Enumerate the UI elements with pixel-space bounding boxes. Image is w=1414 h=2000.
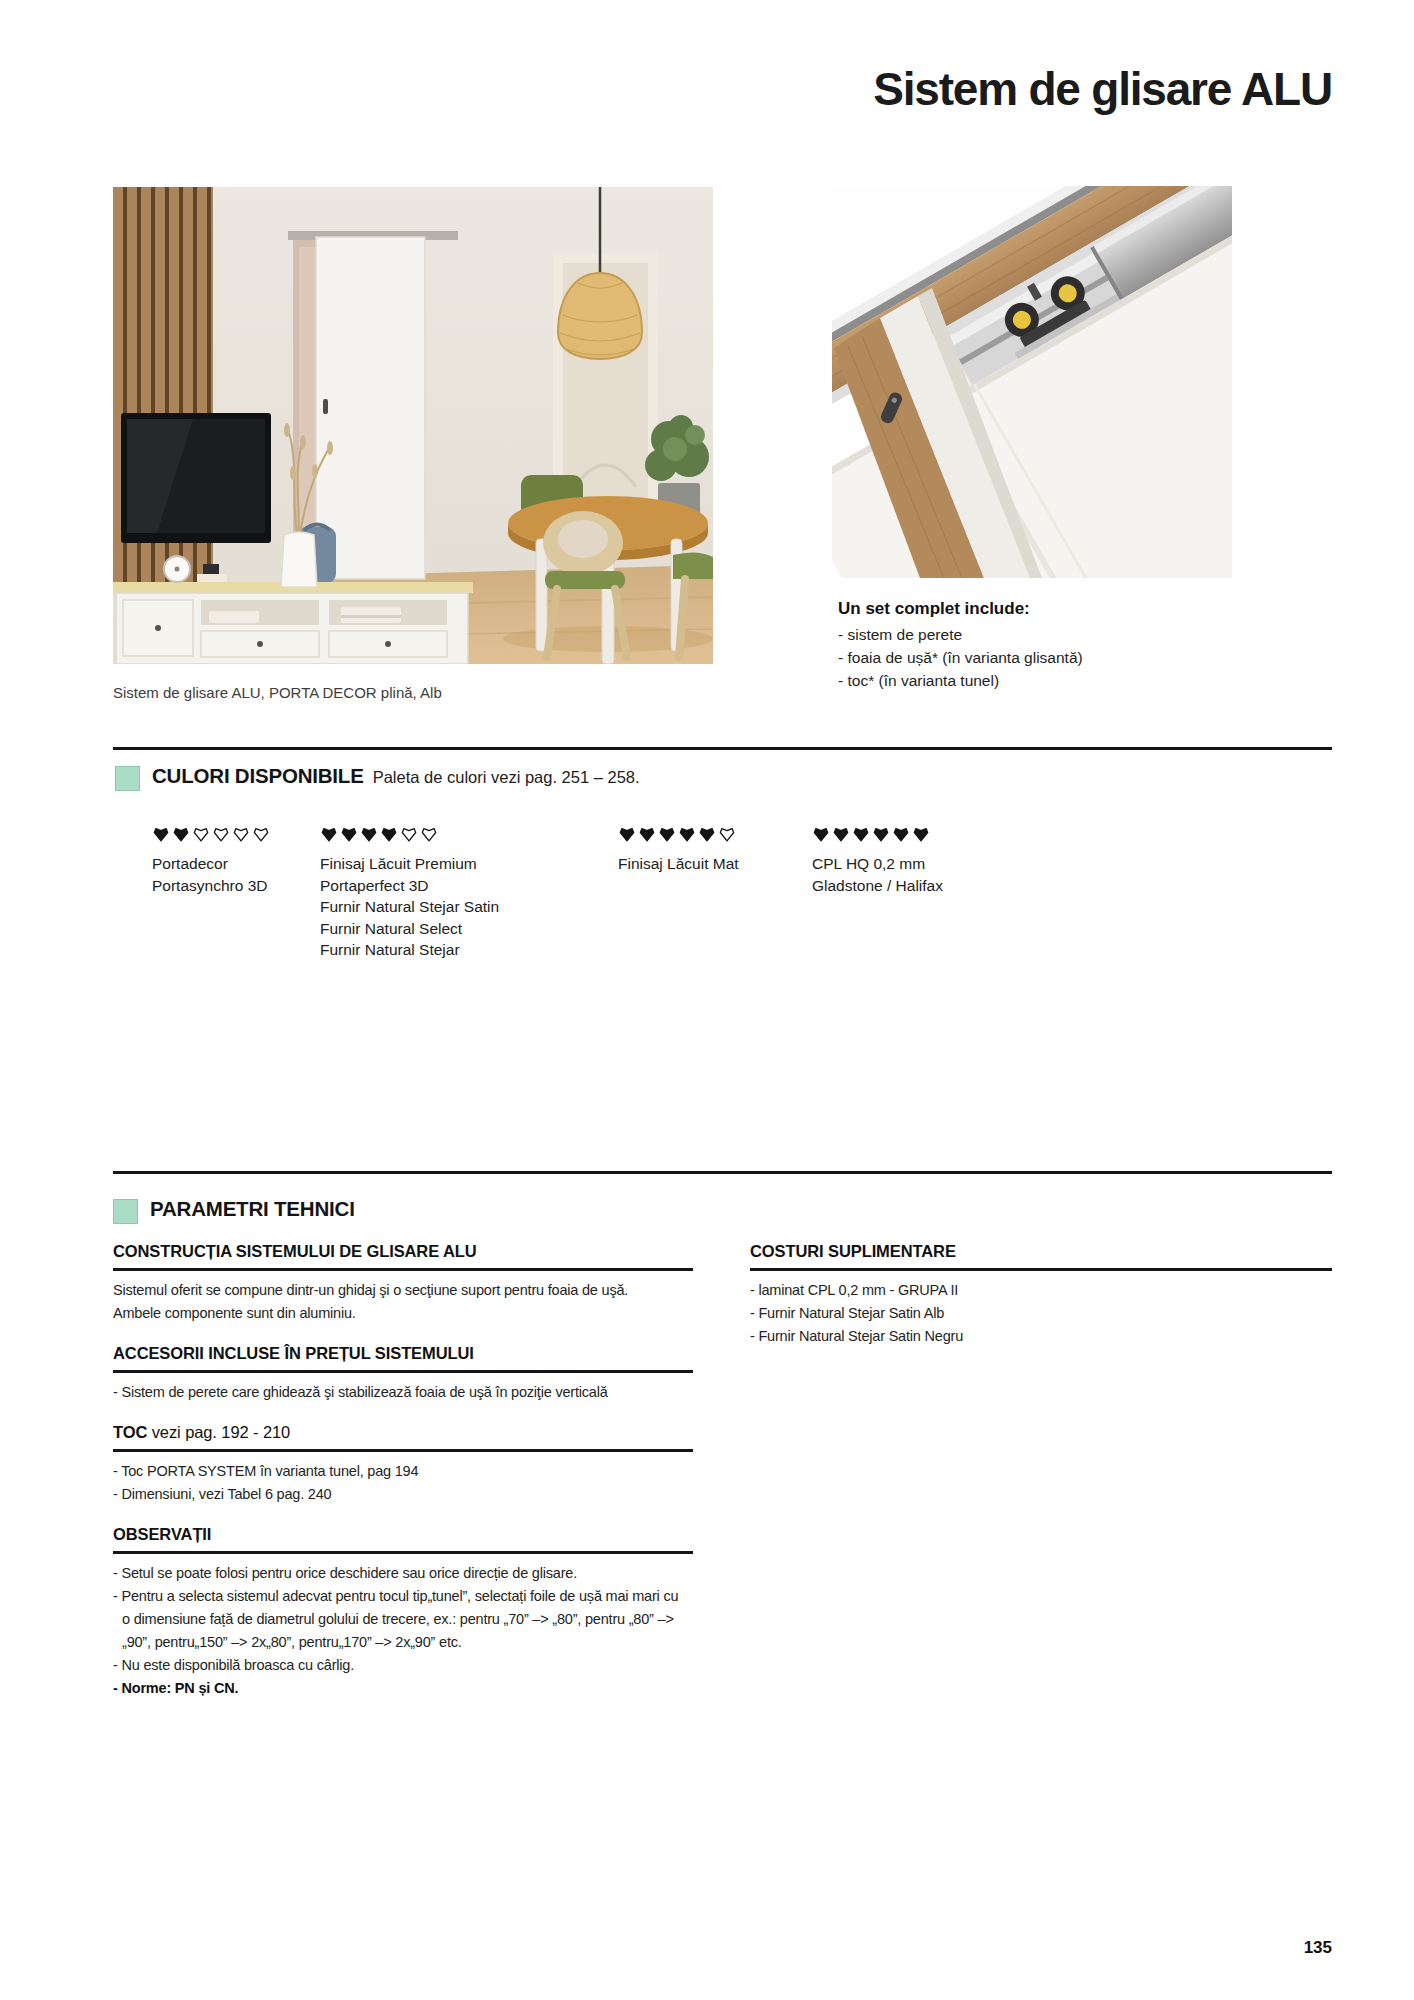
text-line: - Furnir Natural Stejar Satin Alb xyxy=(750,1302,1332,1325)
color-column-label: CPL HQ 0,2 mm xyxy=(812,853,943,875)
text-line: - Setul se poate folosi pentru orice des… xyxy=(113,1562,693,1585)
section-divider xyxy=(113,747,1332,750)
text-line: - Toc PORTA SYSTEM în varianta tunel, pa… xyxy=(113,1460,693,1483)
durability-diamond-filled-icon xyxy=(912,826,930,843)
durability-diamond-filled-icon xyxy=(892,826,910,843)
durability-diamond-filled-icon xyxy=(638,826,656,843)
mechanism-photo xyxy=(832,186,1232,578)
durability-diamond-outline-icon xyxy=(212,826,230,843)
living-room-photo-illustration xyxy=(113,187,713,664)
durability-rating xyxy=(812,826,943,843)
tech-section-header: PARAMETRI TEHNICI xyxy=(150,1197,355,1221)
durability-diamond-filled-icon xyxy=(618,826,636,843)
color-column-label: Furnir Natural Stejar Satin xyxy=(320,896,499,918)
durability-diamond-filled-icon xyxy=(172,826,190,843)
text-line: Ambele componente sunt din aluminiu. xyxy=(113,1302,693,1325)
color-column-lacuit-premium: Finisaj Lăcuit Premium Portaperfect 3D F… xyxy=(320,826,499,961)
durability-diamond-filled-icon xyxy=(832,826,850,843)
section-marker-square xyxy=(115,766,140,791)
durability-diamond-outline-icon xyxy=(718,826,736,843)
set-include-block: Un set complet include: - sistem de pere… xyxy=(838,597,1083,692)
text-line: - Pentru a selecta sistemul adecvat pent… xyxy=(113,1585,693,1608)
mechanism-photo-illustration xyxy=(832,186,1232,578)
tech-block-title: CONSTRUCȚIA SISTEMULUI DE GLISARE ALU xyxy=(113,1242,693,1271)
durability-diamond-filled-icon xyxy=(658,826,676,843)
durability-diamond-filled-icon xyxy=(340,826,358,843)
toc-title-suffix: vezi pag. 192 - 210 xyxy=(147,1423,290,1441)
color-column-label: Portasynchro 3D xyxy=(152,875,270,897)
tech-block-title: TOC vezi pag. 192 - 210 xyxy=(113,1423,693,1452)
section-marker-square xyxy=(113,1199,138,1224)
durability-diamond-outline-icon xyxy=(252,826,270,843)
tech-block-observations: OBSERVAȚII - Setul se poate folosi pentr… xyxy=(113,1525,693,1700)
set-include-item: - foaia de ușă* (în varianta glisantă) xyxy=(838,646,1083,669)
color-column-cpl: CPL HQ 0,2 mm Gladstone / Halifax xyxy=(812,826,943,896)
tech-block-title: OBSERVAȚII xyxy=(113,1525,693,1554)
tech-right-column: COSTURI SUPLIMENTARE - laminat CPL 0,2 m… xyxy=(750,1242,1332,1367)
tech-block-toc: TOC vezi pag. 192 - 210 - Toc PORTA SYST… xyxy=(113,1423,693,1506)
durability-diamond-filled-icon xyxy=(698,826,716,843)
set-include-item: - toc* (în varianta tunel) xyxy=(838,669,1083,692)
tech-block-title: ACCESORII INCLUSE ÎN PREȚUL SISTEMULUI xyxy=(113,1344,693,1373)
toc-title: TOC xyxy=(113,1423,147,1441)
color-column-label: Portadecor xyxy=(152,853,270,875)
tech-block-title: COSTURI SUPLIMENTARE xyxy=(750,1242,1332,1271)
color-column-portadecor: Portadecor Portasynchro 3D xyxy=(152,826,270,896)
tech-heading: PARAMETRI TEHNICI xyxy=(150,1197,355,1221)
colors-subheading: Paleta de culori vezi pag. 251 – 258. xyxy=(373,768,640,787)
text-line: - Dimensiuni, vezi Tabel 6 pag. 240 xyxy=(113,1483,693,1506)
text-line: - Nu este disponibilă broasca cu cârlig. xyxy=(113,1654,693,1677)
durability-diamond-filled-icon xyxy=(380,826,398,843)
durability-diamond-outline-icon xyxy=(420,826,438,843)
color-column-label: Gladstone / Halifax xyxy=(812,875,943,897)
text-line: - Sistem de perete care ghidează şi stab… xyxy=(113,1381,693,1404)
color-column-label: Furnir Natural Stejar xyxy=(320,939,499,961)
set-include-item: - sistem de perete xyxy=(838,623,1083,646)
durability-diamond-filled-icon xyxy=(678,826,696,843)
colors-heading: CULORI DISPONIBILE xyxy=(152,764,364,788)
durability-diamond-filled-icon xyxy=(872,826,890,843)
durability-diamond-outline-icon xyxy=(232,826,250,843)
colors-section-header: CULORI DISPONIBILE Paleta de culori vezi… xyxy=(152,764,640,788)
page-title: Sistem de glisare ALU xyxy=(873,62,1332,116)
durability-diamond-outline-icon xyxy=(192,826,210,843)
text-line: - Norme: PN și CN. xyxy=(113,1677,693,1700)
tech-left-column: CONSTRUCȚIA SISTEMULUI DE GLISARE ALU Si… xyxy=(113,1242,693,1719)
color-column-label: Furnir Natural Select xyxy=(320,918,499,940)
color-column-label: Portaperfect 3D xyxy=(320,875,499,897)
durability-diamond-filled-icon xyxy=(360,826,378,843)
catalog-page: Sistem de glisare ALU xyxy=(0,0,1414,2000)
tech-block-extra-costs: COSTURI SUPLIMENTARE - laminat CPL 0,2 m… xyxy=(750,1242,1332,1348)
color-column-label: Finisaj Lăcuit Mat xyxy=(618,853,739,875)
durability-diamond-filled-icon xyxy=(320,826,338,843)
durability-diamond-filled-icon xyxy=(812,826,830,843)
durability-rating xyxy=(618,826,739,843)
color-column-lacuit-mat: Finisaj Lăcuit Mat xyxy=(618,826,739,875)
text-line: o dimensiune față de diametrul golului d… xyxy=(113,1608,693,1631)
page-number: 135 xyxy=(1304,1938,1332,1958)
color-column-label: Finisaj Lăcuit Premium xyxy=(320,853,499,875)
tech-block-construction: CONSTRUCȚIA SISTEMULUI DE GLISARE ALU Si… xyxy=(113,1242,693,1325)
living-room-photo xyxy=(113,187,713,664)
durability-rating xyxy=(320,826,499,843)
durability-rating xyxy=(152,826,270,843)
durability-diamond-filled-icon xyxy=(152,826,170,843)
set-include-heading: Un set complet include: xyxy=(838,597,1083,620)
durability-diamond-filled-icon xyxy=(852,826,870,843)
tech-block-accessories: ACCESORII INCLUSE ÎN PREȚUL SISTEMULUI -… xyxy=(113,1344,693,1404)
text-line: - laminat CPL 0,2 mm - GRUPA II xyxy=(750,1279,1332,1302)
durability-diamond-outline-icon xyxy=(400,826,418,843)
text-line: Sistemul oferit se compune dintr-un ghid… xyxy=(113,1279,693,1302)
text-line: - Furnir Natural Stejar Satin Negru xyxy=(750,1325,1332,1348)
text-line: „90”, pentru„150” –> 2x„80”, pentru„170”… xyxy=(113,1631,693,1654)
photo-caption: Sistem de glisare ALU, PORTA DECOR plină… xyxy=(113,684,442,701)
section-divider xyxy=(113,1171,1332,1174)
